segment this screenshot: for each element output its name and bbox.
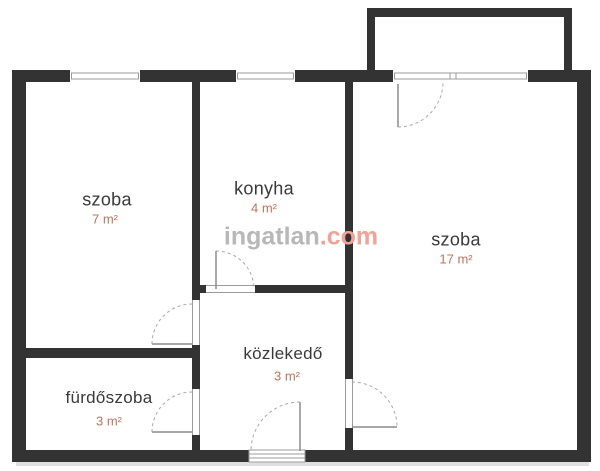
- door-opening: [345, 379, 353, 428]
- wall: [12, 70, 26, 462]
- door-swing-arc: [152, 392, 192, 432]
- room-area-furdoszoba: 3 m²: [96, 414, 122, 429]
- wall: [564, 8, 572, 72]
- door-opening: [192, 389, 200, 435]
- floor-shadow: [16, 462, 589, 466]
- floorplan: szoba 7 m² konyha 4 m² szoba 17 m² közle…: [0, 0, 600, 471]
- door-swing-arc: [251, 402, 300, 451]
- wall: [367, 8, 375, 72]
- room-label-furdoszoba: fürdőszoba: [65, 388, 152, 408]
- wall: [367, 8, 572, 17]
- window-gap: [70, 70, 140, 82]
- room-label-konyha: konyha: [234, 179, 294, 200]
- room-label-szoba-left: szoba: [82, 190, 132, 211]
- door-opening: [192, 300, 200, 345]
- door-swing-arc: [398, 82, 443, 127]
- wall: [26, 348, 192, 358]
- entrance-threshold: [249, 450, 305, 462]
- room-area-konyha: 4 m²: [251, 201, 277, 216]
- watermark-ingatlan: ingatlan.com: [224, 223, 378, 252]
- wall: [577, 70, 591, 462]
- window-gap: [393, 70, 528, 82]
- door-swing-arc: [352, 382, 397, 427]
- room-label-szoba-right: szoba: [431, 230, 481, 251]
- door-swing-arc: [152, 304, 192, 344]
- door-opening: [206, 285, 255, 293]
- room-label-kozlekedo: közlekedő: [243, 344, 322, 364]
- room-area-szoba-right: 17 m²: [439, 252, 472, 267]
- window-gap: [236, 70, 295, 82]
- watermark-tld: .com: [320, 223, 378, 251]
- room-area-kozlekedo: 3 m²: [274, 369, 300, 384]
- door-swing-arc: [216, 251, 254, 289]
- room-area-szoba-left: 7 m²: [92, 212, 118, 227]
- watermark-brand: ingatlan: [224, 223, 320, 251]
